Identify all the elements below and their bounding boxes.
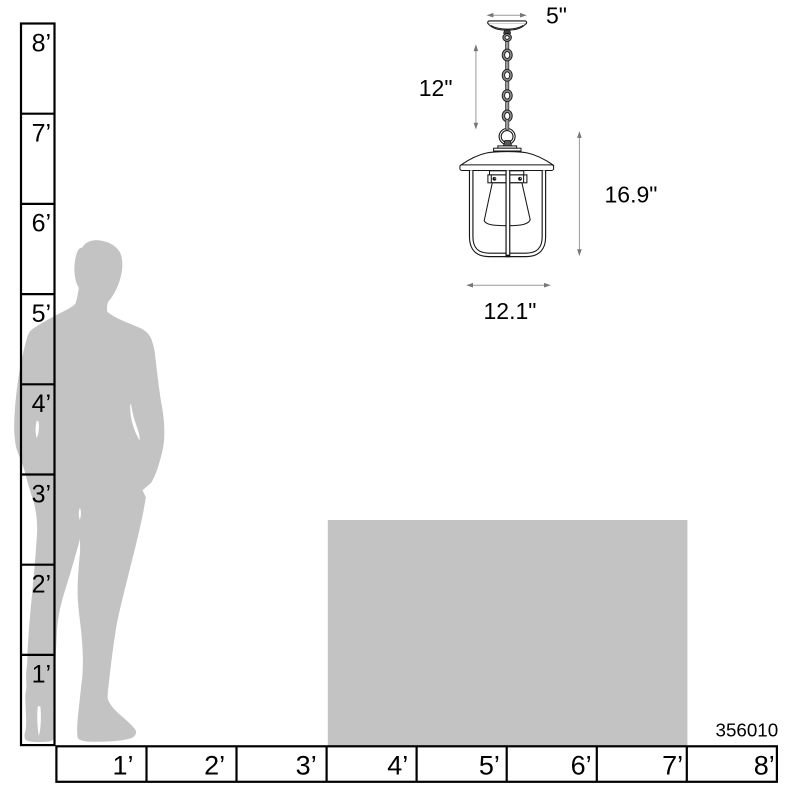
svg-text:2’: 2’	[204, 750, 225, 780]
svg-text:1’: 1’	[112, 750, 133, 780]
svg-text:4’: 4’	[32, 390, 51, 418]
svg-text:7’: 7’	[32, 120, 51, 148]
svg-text:356010: 356010	[716, 719, 779, 740]
svg-text:7’: 7’	[662, 750, 683, 780]
svg-text:5": 5"	[546, 3, 567, 29]
svg-text:5’: 5’	[479, 750, 500, 780]
svg-text:16.9": 16.9"	[605, 182, 658, 208]
svg-text:8’: 8’	[754, 750, 775, 780]
svg-text:6’: 6’	[32, 210, 51, 238]
svg-text:1’: 1’	[32, 661, 51, 689]
svg-text:2’: 2’	[32, 571, 51, 599]
svg-text:4’: 4’	[387, 750, 408, 780]
svg-text:3’: 3’	[296, 750, 317, 780]
svg-text:12.1": 12.1"	[484, 298, 537, 324]
svg-text:3’: 3’	[32, 480, 51, 508]
svg-text:12": 12"	[419, 75, 453, 101]
svg-text:5’: 5’	[32, 300, 51, 328]
svg-text:8’: 8’	[32, 29, 51, 57]
svg-text:6’: 6’	[571, 750, 592, 780]
